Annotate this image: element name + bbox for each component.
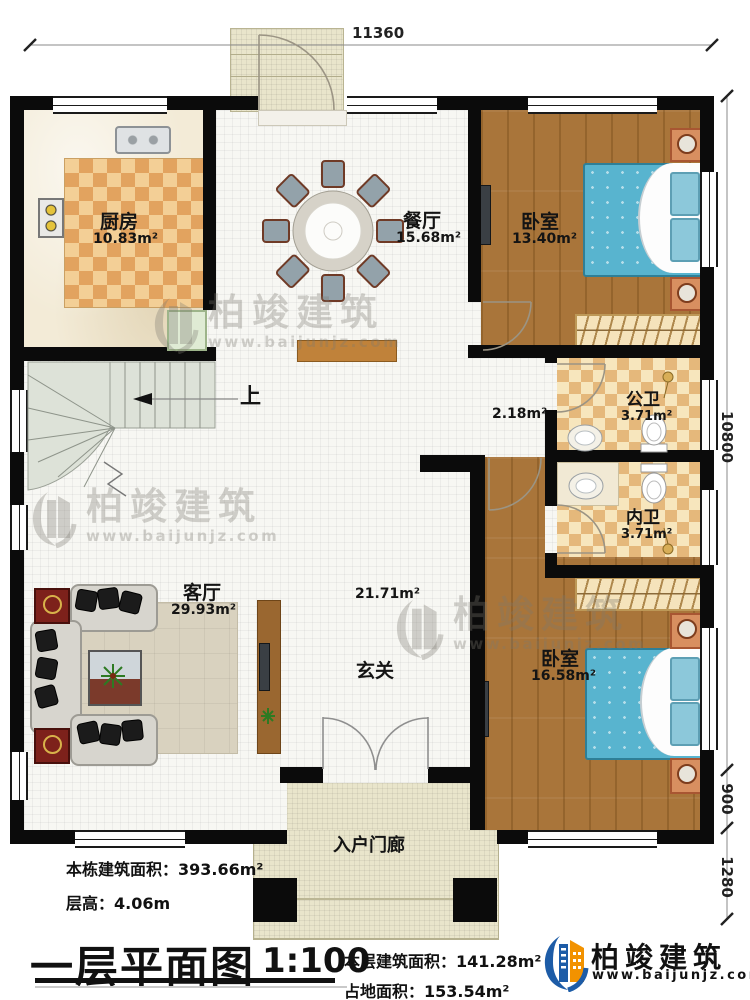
back-porch-step [230, 54, 342, 55]
sofa-pillow [74, 588, 98, 612]
watermark-url: www.baijunjz.com [208, 335, 401, 350]
bath-wall [545, 358, 557, 363]
window [700, 380, 718, 450]
side-table [34, 588, 70, 624]
foyer-wall [420, 455, 472, 472]
porch-column [253, 878, 297, 922]
dim-right-bottom: 1280 [718, 847, 736, 907]
window [53, 96, 167, 114]
dim-right-mid: 900 [718, 769, 736, 829]
entry-porch-floor [287, 783, 475, 830]
side-table [34, 728, 70, 764]
nightstand [670, 758, 704, 794]
window [528, 830, 657, 848]
window [700, 628, 718, 750]
window [10, 505, 28, 550]
room-area-hall: 2.18m² [492, 407, 547, 421]
sofa-pillow [121, 719, 144, 742]
room-area-bedroom-bottom: 16.58m² [531, 669, 596, 683]
wardrobe [575, 314, 705, 347]
back-porch-step [230, 76, 342, 77]
pillow [670, 172, 700, 216]
watermark-brand: 柏竣建筑 [453, 593, 629, 636]
window [700, 490, 718, 565]
pillow [670, 657, 700, 701]
foyer-wall [428, 767, 475, 783]
stat-floor-height: 层高：4.06m [66, 890, 170, 914]
room-name-entry-porch: 入户门廊 [333, 837, 405, 855]
nightstand [670, 128, 704, 162]
foyer-wall [280, 767, 323, 783]
watermark-brand: 柏竣建筑 [86, 485, 262, 528]
room-area-bedroom-top: 13.40m² [512, 232, 577, 246]
window [10, 752, 28, 800]
room-area-living: 29.93m² [171, 603, 236, 617]
watermark-brand: 柏竣建筑 [208, 291, 384, 334]
kitchen-wall [203, 110, 216, 310]
window [700, 172, 718, 267]
dim-top: 11360 [352, 24, 404, 42]
stove [38, 198, 64, 238]
middle-wall [468, 345, 714, 358]
room-name-bedroom-top: 卧室 [521, 213, 559, 232]
bath-wall [545, 565, 714, 578]
watermark: 柏竣建筑 www.baijunjz.com [392, 596, 646, 652]
vestibule-floor [485, 457, 545, 557]
room-area-public-bath: 3.71m² [621, 410, 672, 423]
wall [167, 96, 258, 110]
tv [480, 185, 491, 245]
sofa-pillow [76, 720, 101, 745]
stat-building-total-area: 本栋建筑面积：393.66m² [66, 856, 263, 880]
wall [437, 96, 528, 110]
kitchen-sink [115, 126, 171, 154]
brand-logo-icon [543, 934, 589, 992]
window [347, 96, 437, 114]
porch-column [453, 878, 497, 922]
room-area-dining: 15.68m² [396, 231, 461, 245]
room-name-foyer: 玄关 [356, 662, 394, 681]
title-underline-thin [35, 986, 347, 988]
room-name-living: 客厅 [183, 584, 221, 603]
entry-porch-step [297, 898, 453, 900]
room-name-dining: 餐厅 [403, 212, 441, 231]
wall [497, 830, 528, 844]
stat-land-area: 占地面积：153.54m² [344, 978, 509, 1000]
room-name-bedroom-bottom: 卧室 [541, 650, 579, 669]
room-name-public-bath: 公卫 [626, 392, 660, 409]
sofa-pillow [99, 723, 123, 747]
watermark-url: www.baijunjz.com [86, 529, 279, 544]
watermark: 柏竣建筑 www.baijunjz.com [28, 488, 279, 544]
room-name-kitchen: 厨房 [100, 213, 138, 232]
bath-divider-wall [545, 450, 714, 462]
wall [10, 96, 24, 844]
stat-floor-area: 本层建筑面积：141.28m² [344, 948, 541, 972]
back-door-threshold [258, 110, 347, 126]
tv [259, 643, 270, 691]
watermark-logo-icon [392, 598, 447, 660]
stairs-up-label: 上 [240, 386, 261, 407]
wall [657, 830, 714, 844]
coffee-table [88, 650, 142, 706]
window [75, 830, 185, 848]
window [10, 390, 28, 452]
bedroom-wall [468, 110, 481, 302]
sofa-pillow [34, 656, 58, 680]
room-area-inner-bath: 3.71m² [621, 528, 672, 541]
pillow [670, 218, 700, 262]
nightstand [670, 277, 704, 311]
watermark-logo-icon [28, 490, 80, 548]
sofa-pillow [97, 587, 121, 611]
wall [185, 830, 287, 844]
brand-url: www.baijunjz.com [592, 968, 750, 983]
floor-plan: 11360 10800 900 1280 厨房 10.83m² 餐厅 15.68… [0, 0, 750, 1000]
inner-bath-counter [557, 462, 619, 506]
wall [10, 830, 75, 844]
room-area-kitchen: 10.83m² [93, 232, 158, 246]
bath-wall [545, 462, 557, 506]
window [528, 96, 657, 114]
dim-right-main: 10800 [718, 407, 736, 467]
nightstand [670, 613, 704, 649]
watermark: 柏竣建筑 www.baijunjz.com [150, 294, 401, 350]
pillow [670, 702, 700, 746]
room-name-inner-bath: 内卫 [626, 510, 660, 527]
watermark-logo-icon [150, 296, 202, 354]
sofa-pillow [34, 628, 58, 652]
room-area-foyer: 21.71m² [355, 587, 420, 601]
